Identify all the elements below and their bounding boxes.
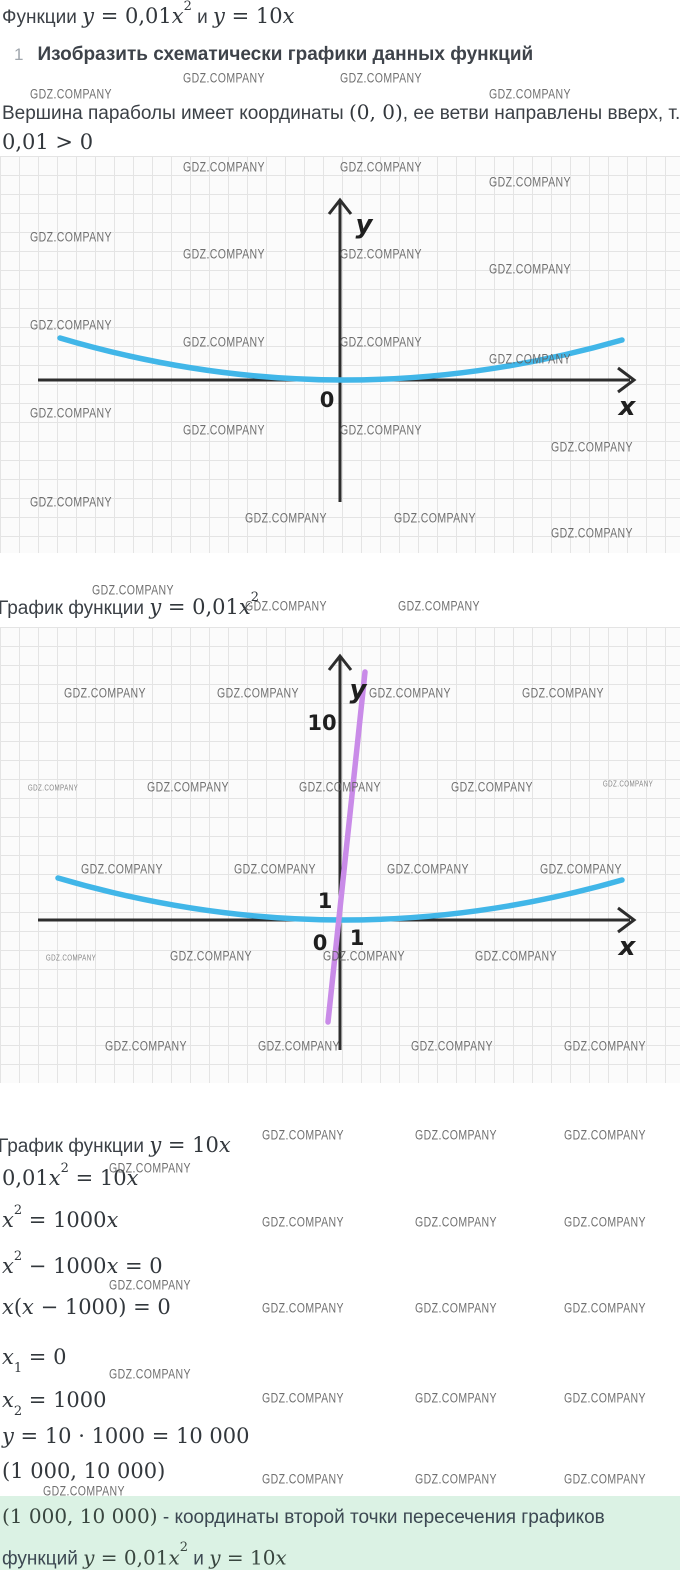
graph2-caption-formula: y = 10x <box>149 1133 230 1157</box>
title-conjunction: и <box>192 7 213 28</box>
equation-1: 0,01x2 = 10x <box>2 1166 138 1190</box>
equation-5-lhs: x <box>2 1345 14 1369</box>
conclusion-formula-1: y = 0,01x <box>83 1545 180 1569</box>
vertex-coordinates: (0, 0) <box>349 100 403 124</box>
graph2-y-tick-1: 1 <box>318 889 333 913</box>
equation-6-lhs: x <box>2 1388 14 1412</box>
conclusion-formula-1-exp: 2 <box>180 1540 188 1555</box>
equation-1-lhs: 0,01x <box>2 1166 61 1190</box>
watermark: GDZ.COMPANY <box>564 1472 646 1487</box>
title-formula-1: y = 0,01x <box>82 4 183 28</box>
watermark: GDZ.COMPANY <box>415 1301 497 1316</box>
graph1-caption-exp: 2 <box>251 590 259 605</box>
graph1-parabola-plot: y 0 x <box>0 156 680 553</box>
watermark: GDZ.COMPANY <box>415 1391 497 1406</box>
vertex-paragraph-text: Вершина параболы имеет координаты <box>2 103 349 124</box>
conclusion-highlight: (1 000, 10 000) - координаты второй точк… <box>0 1496 680 1570</box>
conclusion-text-2: функций <box>2 1548 83 1569</box>
equation-5-rhs: = 0 <box>22 1345 66 1369</box>
conclusion-conjunction: и <box>188 1548 209 1569</box>
watermark: GDZ.COMPANY <box>262 1128 344 1143</box>
equation-6-rhs: = 1000 <box>22 1388 106 1412</box>
watermark: GDZ.COMPANY <box>415 1128 497 1143</box>
step-number: 1 <box>14 45 23 64</box>
equation-2-rhs: = 1000x <box>22 1208 118 1232</box>
watermark: GDZ.COMPANY <box>415 1215 497 1230</box>
watermark: GDZ.COMPANY <box>262 1215 344 1230</box>
graph2-y-axis-label: y <box>350 675 367 705</box>
equation-3-exp: 2 <box>14 1249 22 1264</box>
equation-4-text: x(x − 1000) = 0 <box>2 1295 171 1319</box>
graph2-caption-text: График функции <box>0 1136 149 1157</box>
step-item: 1Изобразить схематически графики данных … <box>14 44 533 66</box>
conclusion-point: (1 000, 10 000) <box>2 1504 158 1528</box>
page-title: Функции y = 0,01x2 и y = 10x <box>2 4 294 29</box>
graph1-caption: График функции y = 0,01x2 <box>0 595 259 620</box>
coefficient-inequality: 0,01 > 0 <box>2 130 93 154</box>
equation-3-rhs: − 1000x = 0 <box>22 1254 163 1278</box>
watermark: GDZ.COMPANY <box>398 599 480 614</box>
graph1-caption-formula: y = 0,01x <box>149 595 250 619</box>
graph2-canvas <box>0 627 680 1083</box>
watermark: GDZ.COMPANY <box>564 1215 646 1230</box>
watermark: GDZ.COMPANY <box>109 1367 191 1382</box>
equation-2-exp: 2 <box>14 1203 22 1218</box>
conclusion-text: - координаты второй точки пересечения гр… <box>158 1507 605 1528</box>
title-formula-2: y = 10x <box>213 4 294 28</box>
watermark: GDZ.COMPANY <box>262 1472 344 1487</box>
watermark: GDZ.COMPANY <box>109 1278 191 1293</box>
equation-4: x(x − 1000) = 0 <box>2 1295 171 1319</box>
graph2-origin-label: 0 <box>313 931 328 955</box>
conclusion-line-2: функций y = 0,01x2 и y = 10x <box>0 1537 680 1570</box>
watermark: GDZ.COMPANY <box>262 1301 344 1316</box>
watermark: GDZ.COMPANY <box>564 1391 646 1406</box>
equation-6: x2 = 1000 <box>2 1388 107 1415</box>
graph1-canvas <box>0 156 680 553</box>
graph1-origin-label: 0 <box>320 388 335 412</box>
graph2-y-tick-10: 10 <box>307 711 336 735</box>
equation-8: (1 000, 10 000) <box>2 1459 165 1483</box>
graph2-combined-plot: y 10 1 0 1 x <box>0 627 680 1083</box>
conclusion-line-1: (1 000, 10 000) - координаты второй точк… <box>0 1498 680 1537</box>
watermark: GDZ.COMPANY <box>262 1391 344 1406</box>
equation-5-idx: 1 <box>14 1361 22 1376</box>
equation-3: x2 − 1000x = 0 <box>2 1254 163 1278</box>
equation-2-lhs: x <box>2 1208 14 1232</box>
graph1-y-axis-label: y <box>356 210 373 240</box>
graph2-x-axis-label: x <box>619 932 636 962</box>
watermark: GDZ.COMPANY <box>415 1472 497 1487</box>
title-formula-1-exp: 2 <box>184 0 192 14</box>
vertex-paragraph: Вершина параболы имеет координаты (0, 0)… <box>2 100 680 125</box>
graph2-x-tick-1: 1 <box>350 926 365 950</box>
equation-6-idx: 2 <box>14 1404 22 1419</box>
watermark: GDZ.COMPANY <box>183 71 265 86</box>
watermark: GDZ.COMPANY <box>564 1301 646 1316</box>
solution-page: { "colors": { "parabola_blue": "#41b6e8"… <box>0 0 680 1570</box>
conclusion-formula-2: y = 10x <box>209 1545 287 1569</box>
step-text: Изобразить схематически графики данных ф… <box>37 44 533 65</box>
watermark: GDZ.COMPANY <box>564 1128 646 1143</box>
coefficient-inequality-text: 0,01 > 0 <box>2 130 93 154</box>
graph1-x-axis-label: x <box>619 392 636 422</box>
equation-2: x2 = 1000x <box>2 1208 118 1232</box>
equation-8-text: (1 000, 10 000) <box>2 1459 165 1483</box>
equation-7-text: y = 10 · 1000 = 10 000 <box>2 1424 249 1448</box>
graph2-caption: График функции y = 10x <box>0 1133 231 1158</box>
equation-5: x1 = 0 <box>2 1345 66 1372</box>
title-text: Функции <box>2 7 82 28</box>
graph1-caption-text: График функции <box>0 598 149 619</box>
equation-7: y = 10 · 1000 = 10 000 <box>2 1424 249 1448</box>
equation-1-exp: 2 <box>61 1161 69 1176</box>
equation-1-rhs: = 10x <box>69 1166 139 1190</box>
vertex-paragraph-tail: , ее ветви направлены вверх, т. к. <box>403 103 680 124</box>
equation-3-lhs: x <box>2 1254 14 1278</box>
watermark: GDZ.COMPANY <box>340 71 422 86</box>
